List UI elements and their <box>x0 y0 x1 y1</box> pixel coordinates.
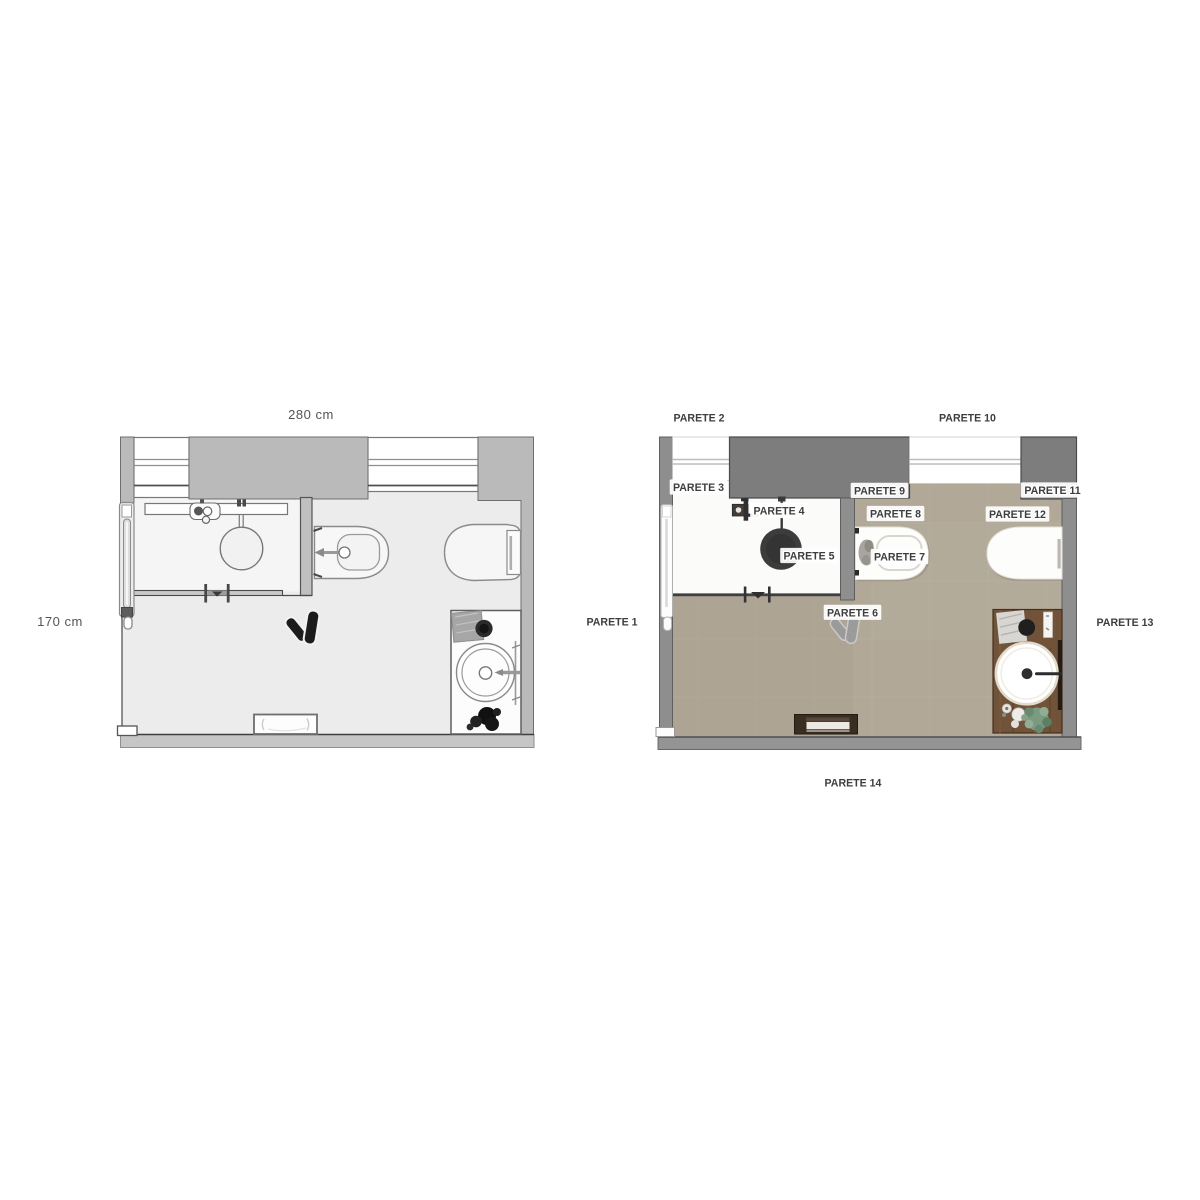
svg-text:PARETE 13: PARETE 13 <box>1097 617 1154 629</box>
svg-text:PARETE 7: PARETE 7 <box>874 552 925 564</box>
svg-text:PARETE 6: PARETE 6 <box>827 607 878 619</box>
svg-text:PARETE 11: PARETE 11 <box>1024 485 1080 497</box>
svg-text:PARETE 12: PARETE 12 <box>989 509 1046 521</box>
svg-text:PARETE 1: PARETE 1 <box>586 617 637 629</box>
svg-text:PARETE 5: PARETE 5 <box>783 551 834 563</box>
svg-text:PARETE 9: PARETE 9 <box>854 485 905 497</box>
svg-text:170 cm: 170 cm <box>37 614 83 629</box>
svg-text:PARETE 3: PARETE 3 <box>673 482 724 494</box>
svg-text:PARETE 4: PARETE 4 <box>753 506 804 518</box>
svg-text:PARETE 2: PARETE 2 <box>673 413 724 425</box>
svg-text:PARETE 10: PARETE 10 <box>939 413 996 425</box>
svg-text:280 cm: 280 cm <box>288 407 334 422</box>
svg-text:PARETE 14: PARETE 14 <box>825 778 882 790</box>
svg-text:PARETE 8: PARETE 8 <box>870 509 921 521</box>
